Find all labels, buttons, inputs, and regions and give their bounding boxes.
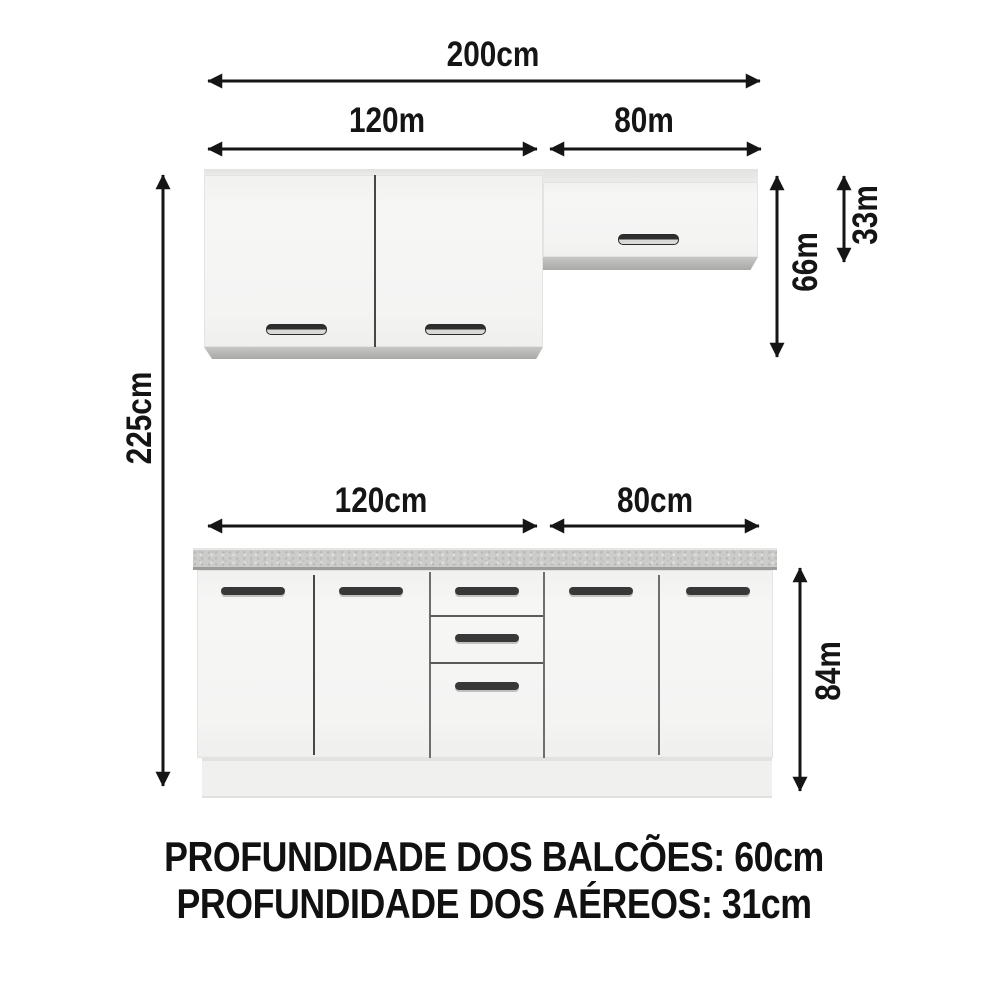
drawer-divider-1 — [430, 615, 543, 617]
drawer-divider-2 — [430, 662, 543, 664]
dim-aereo-left-width: 120m — [319, 102, 455, 140]
kitchen-dimension-diagram: 200cm 120m 80m 120cm 80cm 225cm 66m 33m … — [0, 0, 1000, 1000]
base-door1-handle — [221, 587, 285, 595]
base-gap-drawers-door4 — [543, 572, 545, 758]
upper-cabinet-80-body — [543, 182, 758, 257]
base-gap-door4-door5 — [658, 575, 660, 755]
drawer2-handle — [455, 634, 519, 642]
upper-cabinet-120-right-door-handle — [425, 324, 486, 335]
base-door4-handle — [569, 587, 633, 595]
upper-cabinet-120-left-door-handle — [266, 324, 327, 335]
base-cabinet-body — [197, 570, 773, 758]
upper-cabinet-80-bottom-edge — [543, 257, 758, 270]
upper-cabinet-80-top-face — [543, 169, 758, 182]
base-gap-door1-door2 — [313, 575, 315, 755]
upper-cabinet-120-bottom-edge — [204, 347, 543, 359]
dim-balcao-right-width: 80cm — [587, 482, 723, 520]
dim-balcao-left-width: 120cm — [313, 482, 449, 520]
upper-cabinet-80-door-handle — [618, 234, 679, 245]
dim-aereo-left-height: 66m — [787, 194, 825, 330]
countertop — [193, 548, 777, 570]
dim-aereo-right-height: 33m — [847, 147, 885, 283]
dim-aereo-right-width: 80m — [576, 102, 712, 140]
dim-total-height: 225cm — [121, 350, 159, 486]
drawer1-handle — [455, 587, 519, 595]
base-gap-door2-drawers — [429, 572, 431, 758]
note-balcao-depth: PROFUNDIDADE DOS BALCÕES: 60cm — [164, 833, 824, 881]
upper-cabinet-120-door-gap — [374, 175, 376, 347]
dim-balcao-height: 84m — [810, 603, 848, 739]
drawer3-handle — [455, 682, 519, 690]
dim-total-width: 200cm — [425, 36, 561, 74]
base-door5-handle — [686, 587, 750, 595]
base-cabinet-plinth — [202, 758, 772, 798]
base-door2-handle — [339, 587, 403, 595]
note-aereo-depth: PROFUNDIDADE DOS AÉREOS: 31cm — [176, 880, 811, 928]
